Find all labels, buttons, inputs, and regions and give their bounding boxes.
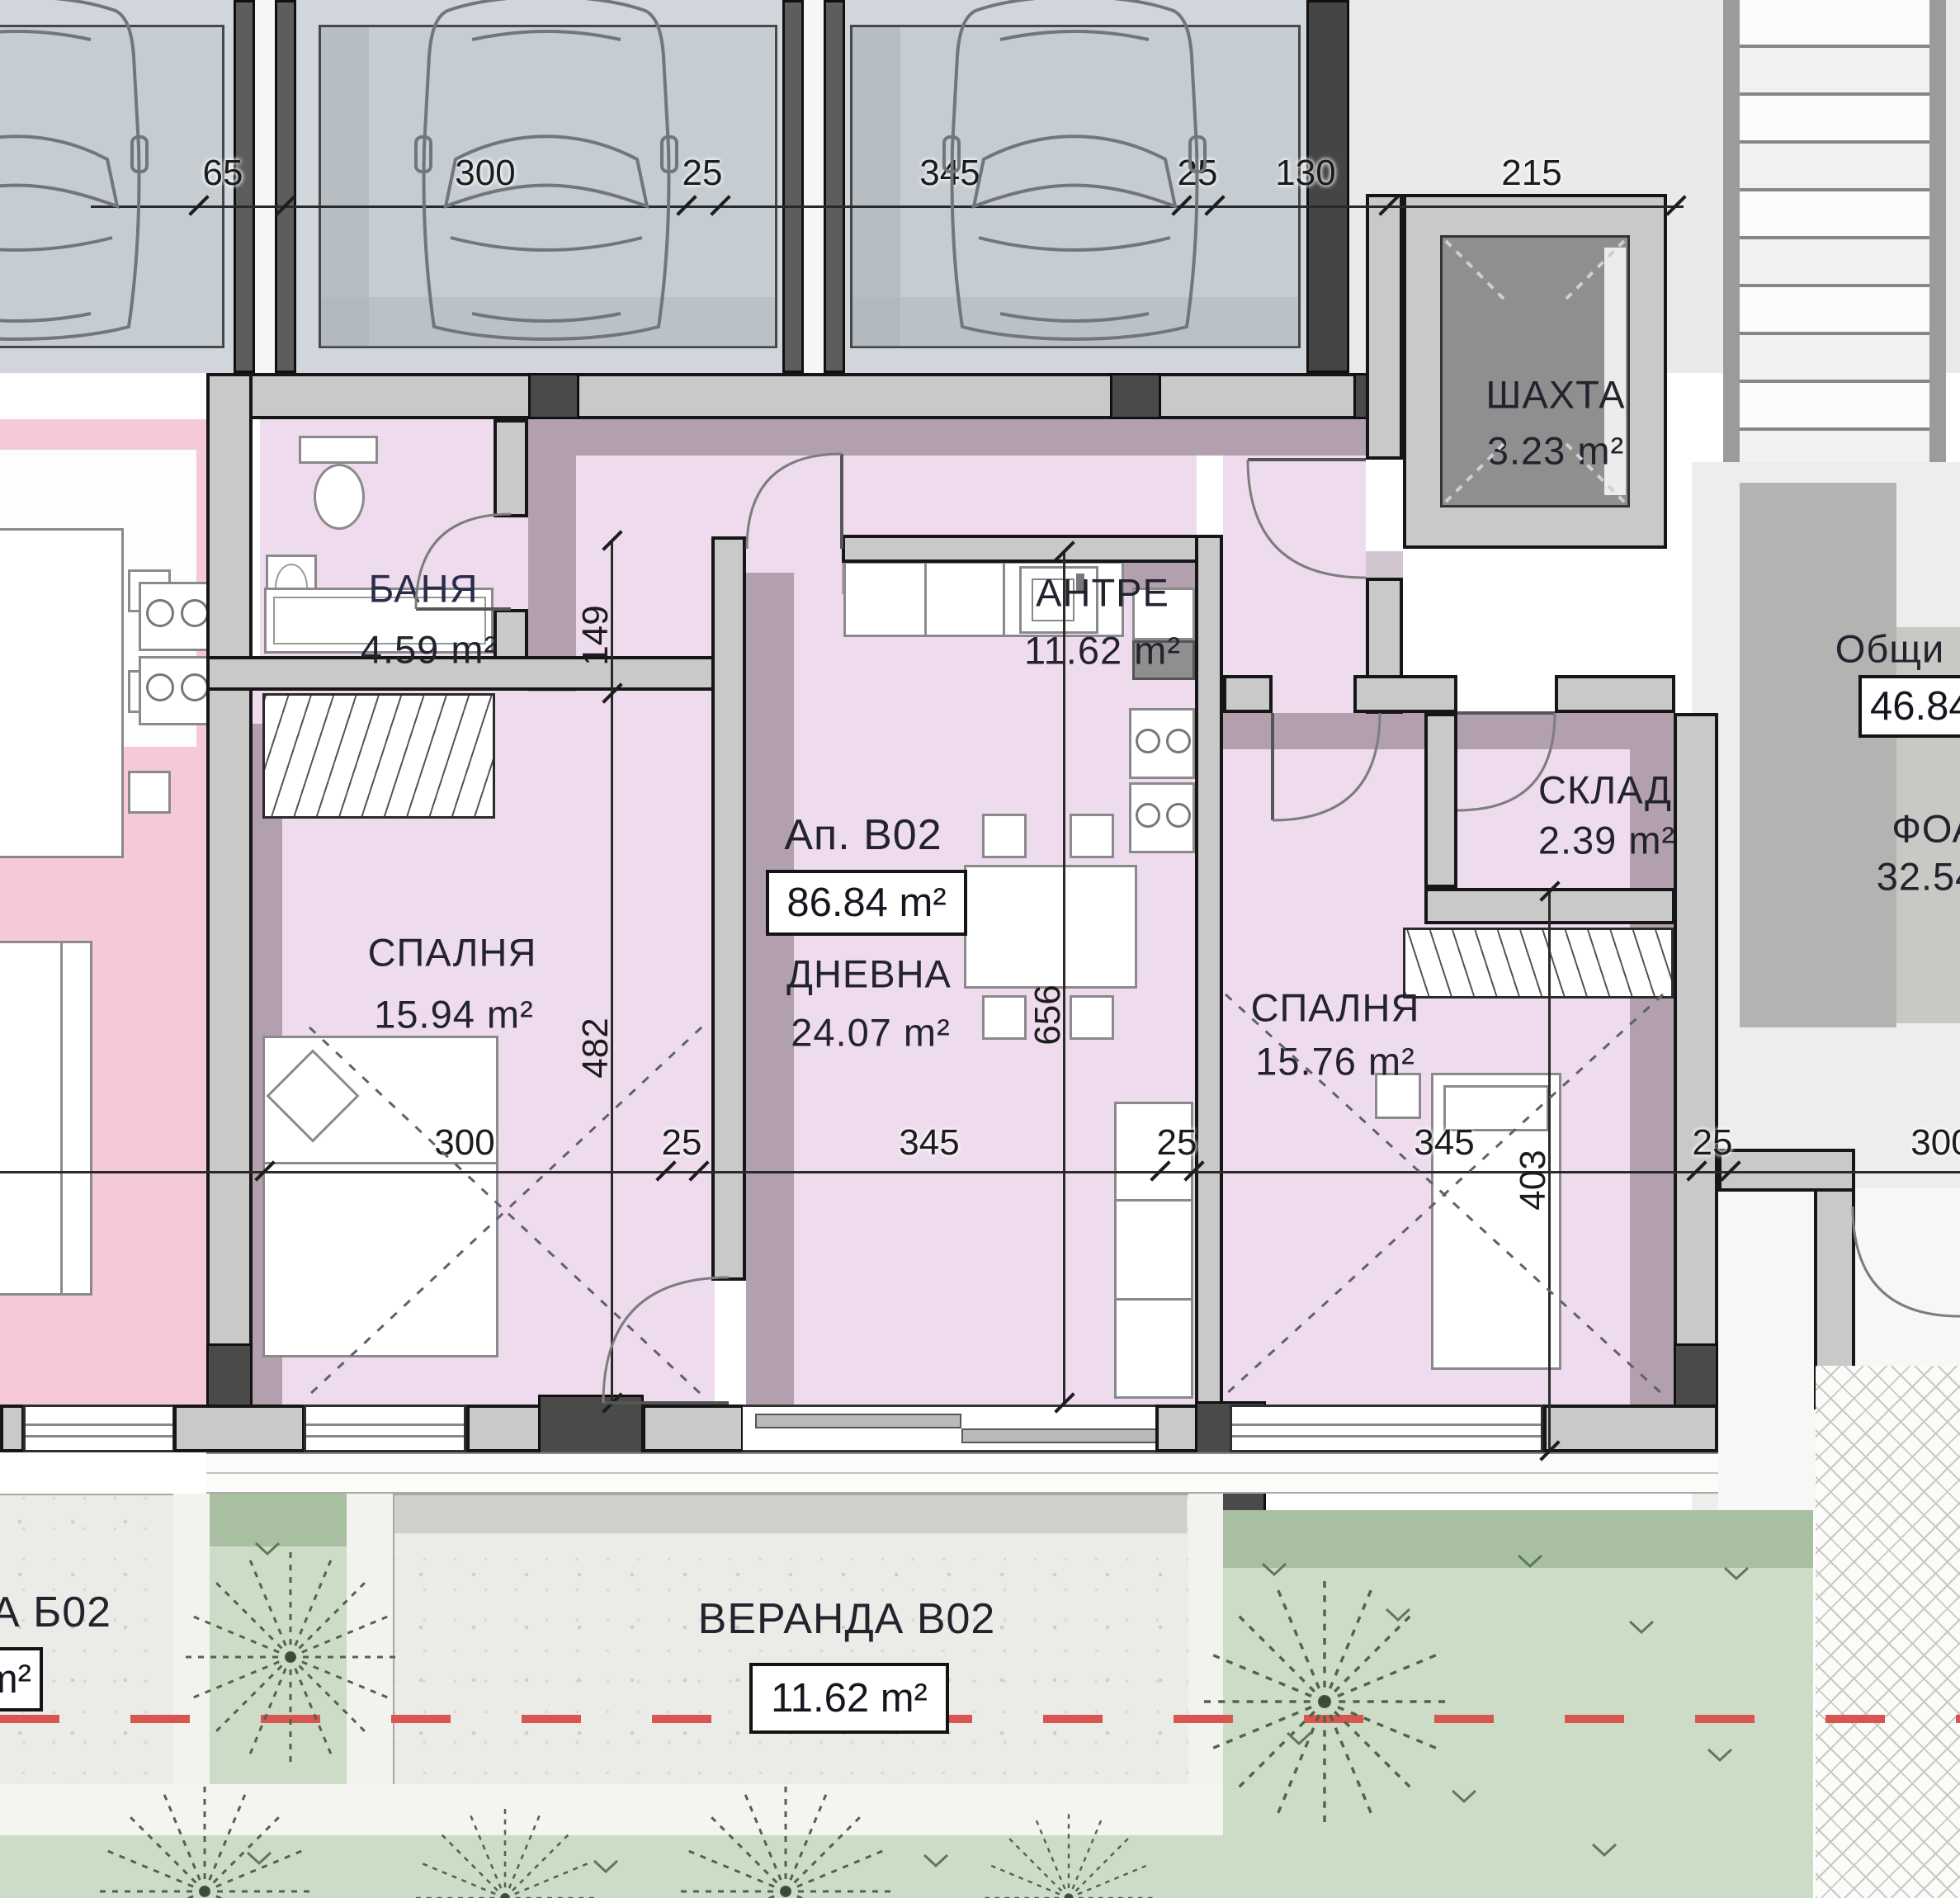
room-cross-marks	[309, 994, 1663, 1395]
grass-mark	[256, 1543, 279, 1554]
tree-icon	[983, 1812, 1155, 1898]
grass-mark	[248, 1853, 271, 1863]
grass-mark	[1263, 1564, 1286, 1575]
tree-icon	[678, 1784, 893, 1898]
car-outline	[416, 0, 677, 339]
grass-mark	[1630, 1622, 1653, 1632]
grass-mark	[1708, 1749, 1731, 1760]
grass-mark	[1593, 1844, 1616, 1855]
car-outline	[944, 0, 1205, 339]
tree-icon	[183, 1550, 398, 1764]
plan-linework	[0, 0, 1960, 1898]
grass-mark	[924, 1855, 947, 1866]
grass-mark	[1725, 1568, 1748, 1579]
floor-plan: ШАХТА 3.23 m² АНТРЕ 11.62 m² БАНЯ 4.59 m…	[0, 0, 1960, 1898]
grass-mark	[594, 1861, 617, 1872]
grass-mark	[1452, 1791, 1476, 1801]
tree-icon	[414, 1807, 597, 1898]
grass-mark	[1518, 1556, 1542, 1566]
shaft-cross-marks	[1446, 241, 1624, 502]
car-outline	[0, 0, 147, 339]
door-arcs	[416, 454, 1960, 1403]
tree-icon	[1202, 1579, 1448, 1825]
tree-icon	[97, 1784, 312, 1898]
